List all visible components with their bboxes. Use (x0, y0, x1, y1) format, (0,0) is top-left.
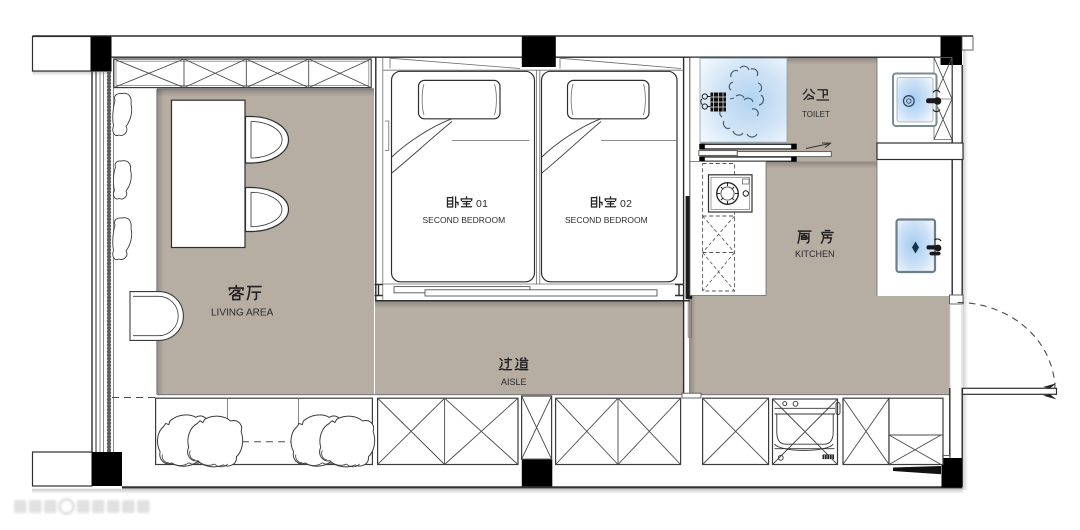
svg-text:01: 01 (476, 198, 488, 210)
svg-text:LIVING AREA: LIVING AREA (211, 308, 274, 319)
svg-text:AISLE: AISLE (501, 377, 527, 387)
svg-text:KITCHEN: KITCHEN (795, 249, 835, 259)
svg-text:SECOND BEDROOM: SECOND BEDROOM (565, 215, 648, 225)
svg-text:02: 02 (620, 198, 632, 210)
svg-text:TOILET: TOILET (802, 110, 830, 119)
svg-text:SECOND BEDROOM: SECOND BEDROOM (423, 215, 506, 225)
